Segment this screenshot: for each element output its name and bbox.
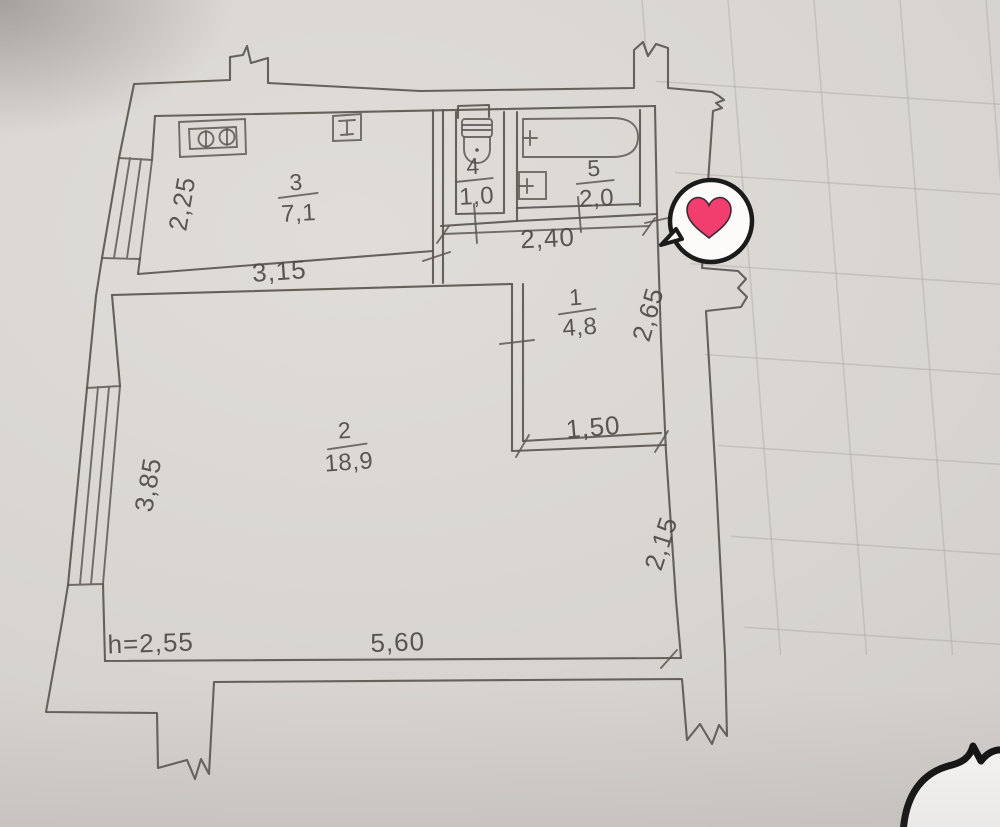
- floor-plan-photo: 3 7,1 4 1,0 5 2,0 1 4,8 2 18,9 2,25 3,15…: [0, 0, 1000, 827]
- speech-bubble-icon: [903, 746, 1000, 827]
- interior-wall-edge-bottom: [105, 658, 681, 661]
- tub-faucet: [523, 131, 537, 145]
- room-number: 3: [289, 169, 304, 196]
- grid-line: [728, 0, 781, 660]
- bathtub-icon: [523, 118, 638, 157]
- tank-lines: [463, 125, 491, 130]
- kitchen-door-tick: [423, 252, 450, 261]
- grid-line: [636, 530, 1000, 555]
- heart-bubble-sticker: [661, 180, 752, 262]
- room-area: 2,0: [578, 184, 614, 213]
- dim-room2-right: 2,15: [638, 513, 683, 574]
- dim-corridor-top: 2,40: [519, 222, 575, 255]
- room-area: 1,0: [458, 182, 494, 211]
- sink-faucet: [519, 179, 533, 193]
- windows: [68, 158, 152, 585]
- grid-line: [636, 80, 1000, 105]
- dim-corridor-right: 2,65: [626, 284, 670, 345]
- dim-room2-left: 3,85: [128, 455, 167, 514]
- interior-wall-edge-right: [655, 106, 681, 658]
- grid-line: [636, 260, 1000, 285]
- room-number: 4: [466, 153, 481, 180]
- background-grid: [636, 0, 1000, 660]
- room-label-4: 4 1,0: [454, 152, 494, 211]
- fixtures: [179, 114, 638, 199]
- tub-outline: [523, 118, 638, 157]
- grid-line: [636, 350, 1000, 375]
- vent-icon: [333, 114, 361, 141]
- corner-bubble-sticker: [903, 746, 1000, 827]
- room-label-2: 2 18,9: [321, 415, 374, 477]
- hall-left-wall: [512, 284, 523, 450]
- room-number: 5: [587, 155, 602, 182]
- room-label-1: 1 4,8: [557, 283, 598, 342]
- room-label-3: 3 7,1: [277, 168, 319, 228]
- wc-niche: [458, 105, 489, 118]
- grid-line: [636, 620, 1000, 645]
- room-number: 1: [568, 284, 583, 311]
- exterior-wall-path: [46, 42, 747, 779]
- toilet-tank: [462, 119, 492, 137]
- room-label-5: 5 2,0: [575, 154, 615, 213]
- dim-room2-bottom: 5,60: [370, 626, 426, 658]
- toilet-dot: [475, 148, 479, 152]
- sink-icon: [519, 172, 546, 199]
- dim-kitchen-left: 2,25: [162, 174, 201, 233]
- dim-ceiling-height: h=2,55: [107, 627, 194, 660]
- room-area: 4,8: [562, 313, 599, 342]
- grid-line: [814, 0, 867, 660]
- exterior-walls: [46, 42, 747, 779]
- room-labels: 3 7,1 4 1,0 5 2,0 1 4,8 2 18,9: [277, 152, 615, 477]
- interior-wall-edge-top: [155, 106, 655, 116]
- room-area: 7,1: [281, 199, 317, 228]
- room2-door-tick: [500, 340, 534, 344]
- dim-kitchen-bottom: 3,15: [251, 254, 308, 288]
- grid-line: [636, 440, 1000, 465]
- dimension-marks: [423, 197, 677, 668]
- room-area: 18,9: [324, 447, 374, 477]
- dimension-labels: 2,25 3,15 2,40 2,65 1,50 2,15 3,85 5,60 …: [107, 174, 684, 659]
- grid-line: [986, 0, 1000, 660]
- kitchen-bottom-wall: [112, 251, 512, 295]
- room-number: 2: [337, 417, 352, 444]
- dim-hall-step: 1,50: [565, 410, 622, 445]
- floor-plan-drawing: 3 7,1 4 1,0 5 2,0 1 4,8 2 18,9 2,25 3,15…: [0, 0, 1000, 827]
- room2-window: [68, 386, 120, 585]
- stove-icon: [179, 119, 246, 157]
- vent-glyph: [339, 120, 355, 135]
